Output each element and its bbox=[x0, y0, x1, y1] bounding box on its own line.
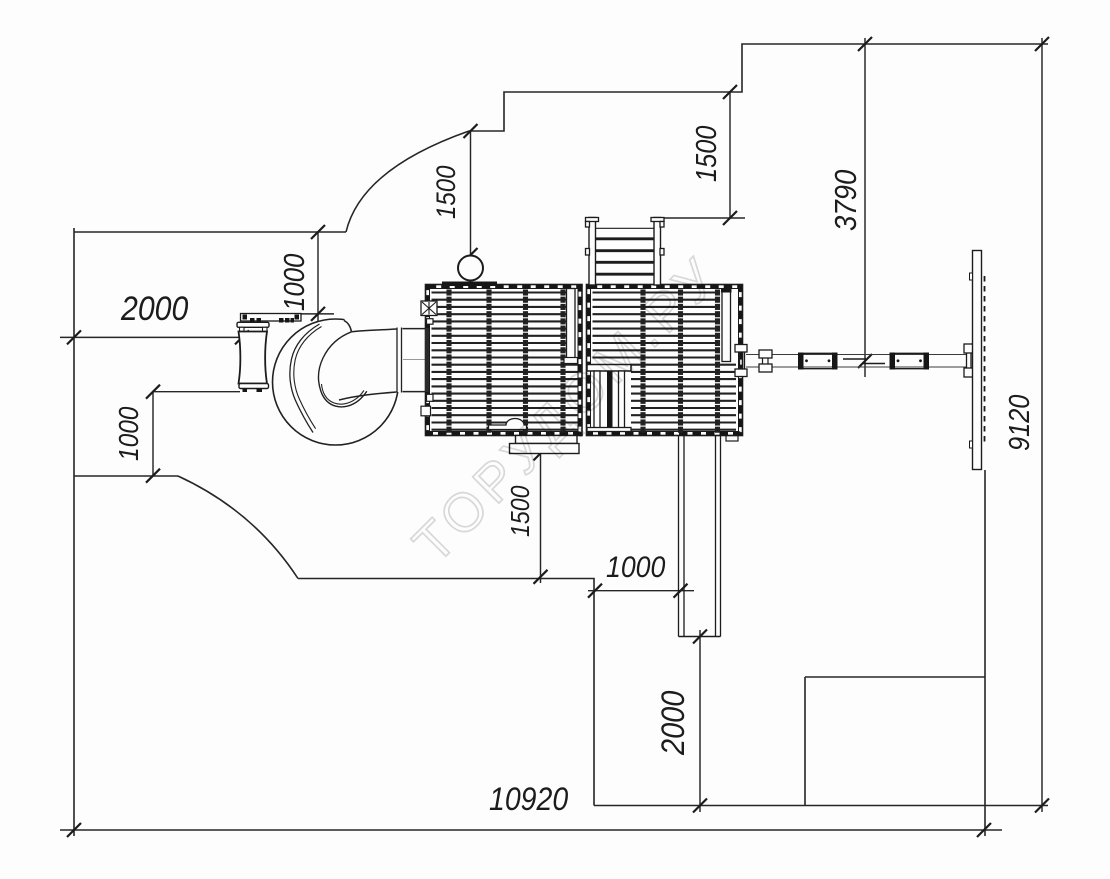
svg-text:2000: 2000 bbox=[120, 289, 188, 327]
svg-text:1000: 1000 bbox=[113, 406, 145, 461]
svg-text:3790: 3790 bbox=[829, 169, 864, 231]
svg-text:2000: 2000 bbox=[654, 691, 691, 756]
svg-text:1500: 1500 bbox=[432, 166, 462, 219]
svg-text:1000: 1000 bbox=[278, 253, 311, 311]
svg-text:9120: 9120 bbox=[1004, 395, 1036, 451]
svg-text:1500: 1500 bbox=[691, 126, 723, 182]
svg-text:1000: 1000 bbox=[606, 551, 666, 585]
svg-text:10920: 10920 bbox=[489, 783, 568, 818]
